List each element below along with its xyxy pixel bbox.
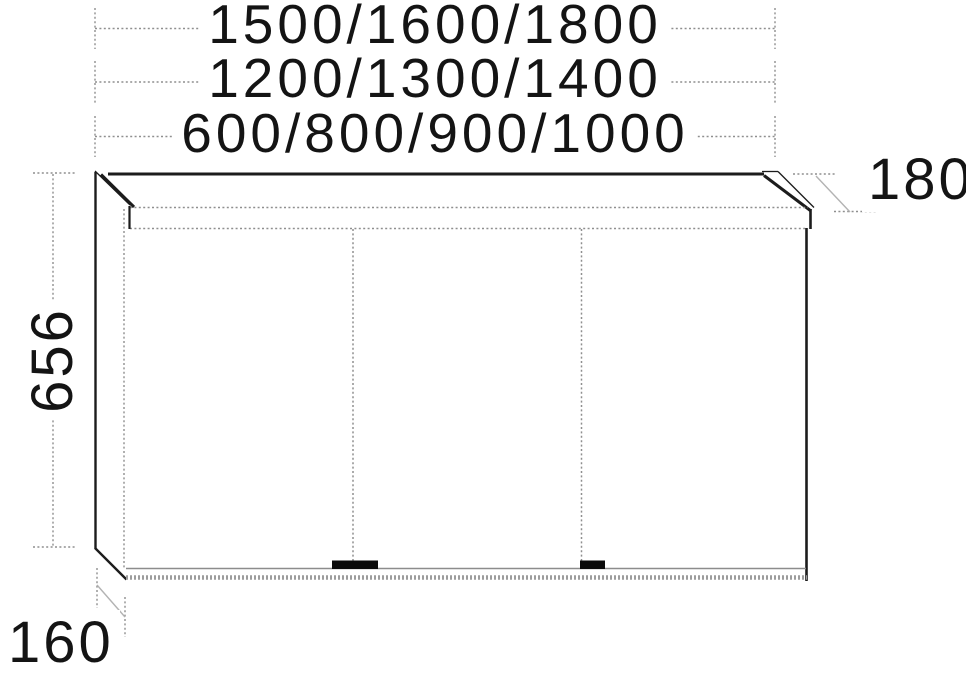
door-handle-center [332,561,378,570]
base-depth-label-160-text: 160 [2,610,120,675]
cabinet-body [95,172,807,581]
width-label-row2-text: 1200/1300/1400 [200,47,670,109]
canopy-outline [95,171,814,229]
height-label-656-text: 656 [20,301,85,419]
width-label-row3: 600/800/900/1000 [95,106,775,161]
canopy-depth-label-180: 180 [862,151,966,209]
height-label-656: 656 [24,275,82,445]
width-label-row2: 1200/1300/1400 [95,51,775,106]
depth180-oblique-line [816,176,850,212]
width-label-row3-text: 600/800/900/1000 [173,102,697,164]
canopy-depth-label-180-text: 180 [862,147,966,212]
width-label-row1: 1500/1600/1800 [95,0,775,52]
door-handle-right [580,561,605,570]
body-bottom-left-diagonal [95,548,127,580]
technical-drawing-canvas: 1500/1600/1800 1200/1300/1400 600/800/90… [0,0,966,682]
canopy-left-inner-diagonal [101,175,134,208]
base-depth-label-160: 160 [2,614,120,672]
door-dividers [353,229,582,561]
